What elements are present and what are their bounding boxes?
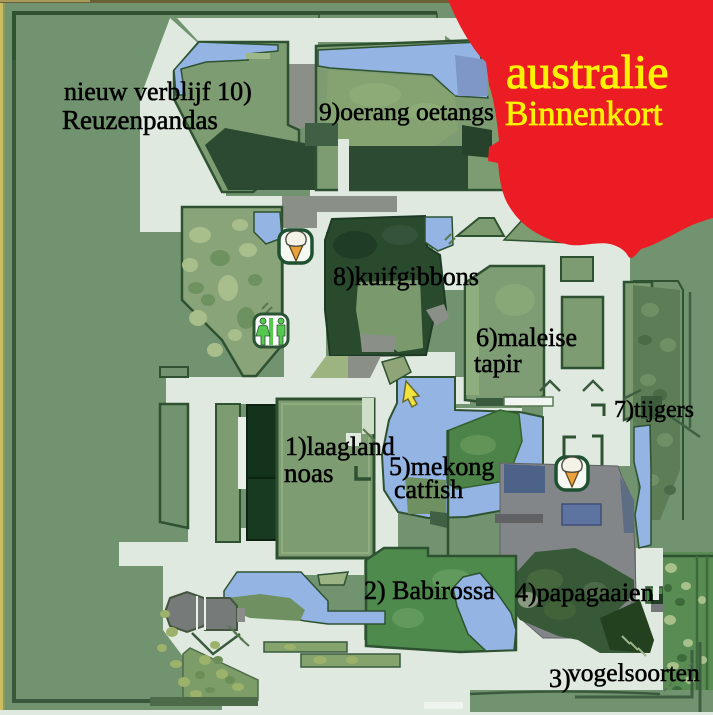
svg-text:8)kuifgibbons: 8)kuifgibbons xyxy=(333,262,479,291)
svg-text:Binnenkort: Binnenkort xyxy=(505,94,663,133)
svg-text:australie: australie xyxy=(506,46,669,99)
svg-text:catfish: catfish xyxy=(394,475,463,504)
svg-text:7)tijgers: 7)tijgers xyxy=(614,397,694,423)
svg-text:vogelsoorten: vogelsoorten xyxy=(568,658,700,687)
svg-text:6)maleise: 6)maleise xyxy=(476,323,577,352)
svg-text:noas: noas xyxy=(284,458,334,488)
svg-text:nieuw verblijf 10): nieuw verblijf 10) xyxy=(64,77,252,106)
svg-text:1)laagland: 1)laagland xyxy=(285,432,395,461)
svg-text:2) Babirossa: 2) Babirossa xyxy=(364,576,495,605)
svg-text:9)oerang oetangs: 9)oerang oetangs xyxy=(319,97,494,126)
svg-text:Reuzenpandas: Reuzenpandas xyxy=(62,105,218,135)
svg-text:4)papagaaien: 4)papagaaien xyxy=(515,578,654,607)
svg-text:tapir: tapir xyxy=(474,349,522,378)
